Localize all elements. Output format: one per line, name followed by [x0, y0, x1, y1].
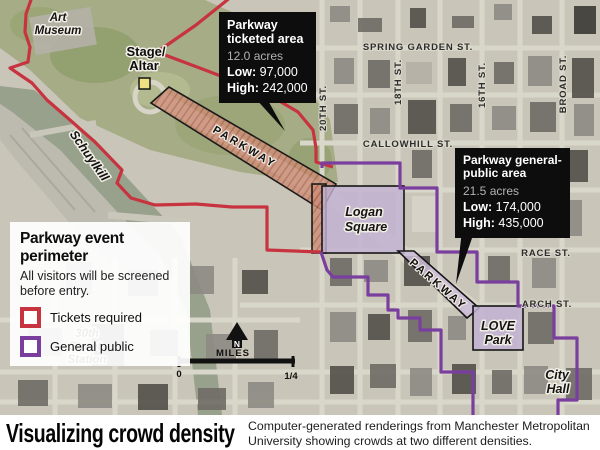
scale-end-label: 1/4	[284, 371, 298, 382]
callout-ticketed: Parkway ticketed area 12.0 acres Low: 97…	[219, 12, 316, 103]
callout-general-low: Low: 174,000	[463, 200, 562, 216]
callout-ticketed-low: Low: 97,000	[227, 65, 308, 81]
map-area: SPRING GARDEN ST. 20TH ST. 18TH ST. 16TH…	[0, 0, 600, 415]
public-swatch-icon	[20, 336, 41, 357]
love-park-label: LOVE	[481, 319, 516, 333]
callout-general-acres: 21.5 acres	[463, 184, 562, 198]
sixteenth-st-label: 16TH ST.	[477, 62, 488, 108]
tickets-swatch-icon	[20, 307, 41, 328]
callout-general: Parkway general- public area 21.5 acres …	[455, 148, 570, 238]
city-hall-label: City	[545, 368, 570, 382]
legend-item-tickets: Tickets required	[20, 307, 180, 328]
svg-text:Park: Park	[484, 333, 512, 347]
callout-ticketed-acres: 12.0 acres	[227, 49, 308, 63]
legend: Parkway event perimeter All visitors wil…	[10, 222, 190, 366]
stage-marker	[139, 78, 150, 89]
caption-text: Computer-generated renderings from Manch…	[248, 419, 593, 450]
legend-item-public: General public	[20, 336, 180, 357]
svg-text:Museum: Museum	[35, 25, 82, 37]
callout-ticketed-high: High: 242,000	[227, 81, 308, 97]
svg-text:Hall: Hall	[547, 382, 570, 396]
broad-st-label: BROAD ST.	[558, 55, 569, 113]
caption-headline: Visualizing crowd density	[6, 418, 235, 449]
svg-text:Square: Square	[345, 220, 387, 234]
svg-text:Altar: Altar	[129, 58, 159, 73]
scale-start-label: 0	[176, 369, 181, 380]
callout-ticketed-title: Parkway	[227, 18, 308, 32]
logan-square-label: Logan	[345, 205, 383, 219]
infographic: SPRING GARDEN ST. 20TH ST. 18TH ST. 16TH…	[0, 0, 600, 450]
twentieth-st-label: 20TH ST.	[318, 85, 329, 131]
art-museum-label: Art	[49, 12, 68, 24]
spring-garden-label: SPRING GARDEN ST.	[363, 42, 473, 53]
eighteenth-st-label: 18TH ST.	[393, 59, 404, 105]
scale-unit-label: MILES	[216, 348, 250, 359]
callout-general-title: Parkway general-	[463, 154, 562, 167]
legend-title: Parkway event perimeter	[20, 230, 180, 266]
legend-note: All visitors will be screened before ent…	[20, 269, 180, 299]
callout-general-high: High: 435,000	[463, 216, 562, 232]
stage-altar-label: Stage/	[126, 44, 165, 59]
callowhill-st-label: CALLOWHILL ST.	[363, 139, 453, 150]
arch-st-label: ARCH ST.	[522, 299, 572, 310]
caption-strip: Visualizing crowd density Computer-gener…	[0, 415, 600, 450]
race-st-label: RACE ST.	[521, 248, 571, 259]
